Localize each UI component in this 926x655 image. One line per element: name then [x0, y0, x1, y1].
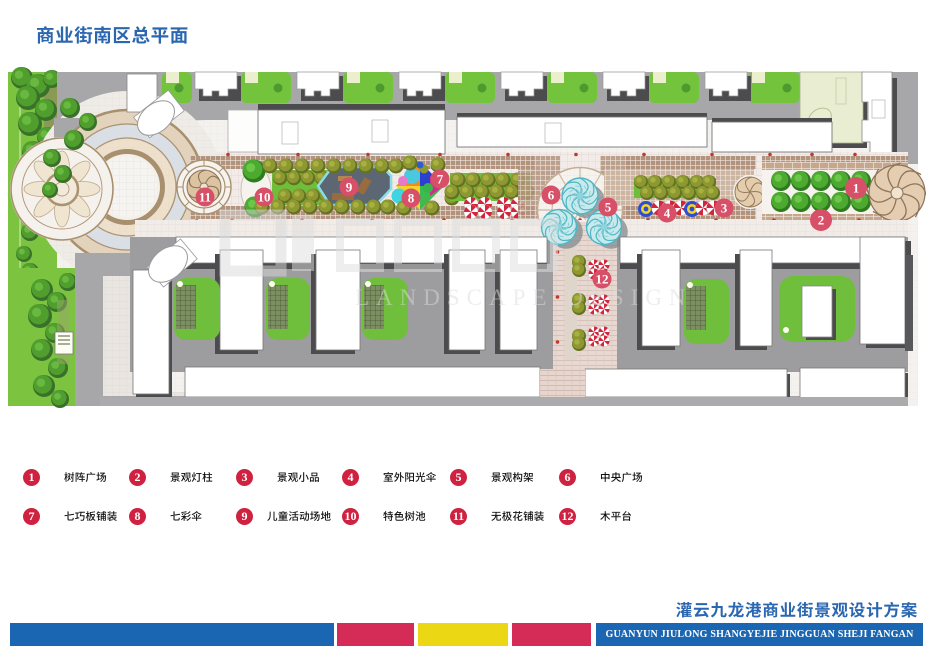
svg-text:1: 1	[853, 180, 860, 195]
svg-text:6: 6	[548, 187, 555, 202]
svg-text:9: 9	[346, 179, 353, 194]
svg-text:3: 3	[721, 200, 728, 215]
svg-text:8: 8	[408, 190, 415, 205]
svg-text:11: 11	[199, 189, 211, 204]
svg-text:4: 4	[664, 205, 671, 220]
svg-text:10: 10	[258, 189, 271, 204]
svg-text:12: 12	[596, 271, 609, 286]
svg-text:LANDSCAPE DESIGN: LANDSCAPE DESIGN	[355, 285, 693, 310]
svg-text:2: 2	[818, 212, 825, 227]
svg-text:5: 5	[605, 199, 612, 214]
svg-text:7: 7	[437, 171, 444, 186]
